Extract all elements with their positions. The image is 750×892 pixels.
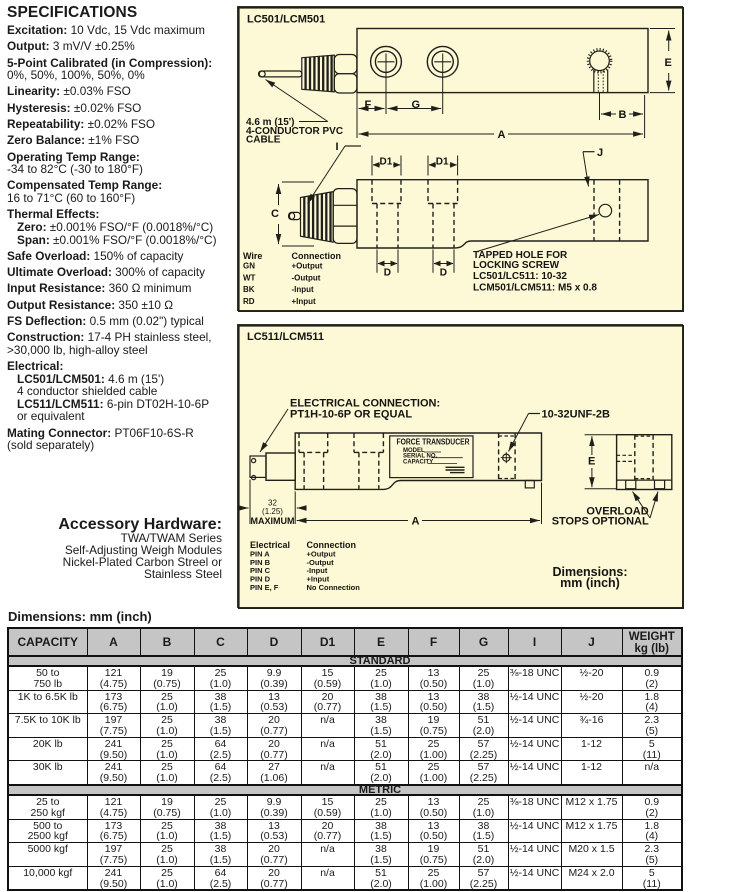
svg-text:-Output: -Output [292,273,321,282]
svg-text:J: J [597,147,603,159]
svg-text:+Input: +Input [292,297,317,306]
svg-text:B: B [619,109,627,121]
svg-text:G: G [412,99,421,111]
svg-text:PIN E, F: PIN E, F [250,583,279,592]
svg-text:A: A [412,516,420,528]
svg-text:LC501/LC511: 10-32: LC501/LC511: 10-32 [473,271,567,282]
svg-text:WT: WT [243,273,256,282]
svg-text:E: E [588,456,595,468]
svg-text:LC501/LCM501: LC501/LCM501 [247,14,325,26]
svg-text:+Output: +Output [292,262,323,271]
svg-text:(1.25): (1.25) [262,507,283,516]
svg-text:E: E [665,57,672,69]
svg-text:mm (inch): mm (inch) [560,576,620,590]
svg-text:C: C [271,208,279,220]
svg-text:D1: D1 [436,156,449,167]
svg-text:Wire: Wire [243,251,262,261]
svg-text:F: F [365,99,372,111]
svg-text:D: D [440,268,447,279]
svg-text:10-32UNF-2B: 10-32UNF-2B [542,409,611,421]
svg-text:MAXIMUM: MAXIMUM [251,516,295,526]
svg-text:RD: RD [243,297,255,306]
svg-text:Connection: Connection [307,540,357,550]
svg-text:Electrical: Electrical [250,540,290,550]
svg-text:D: D [384,268,391,279]
svg-text:LCM501/LCM511: M5 x 0.8: LCM501/LCM511: M5 x 0.8 [473,282,597,293]
svg-text:PT1H-10-6P OR EQUAL: PT1H-10-6P OR EQUAL [290,409,412,421]
svg-text:No Connection: No Connection [307,583,361,592]
svg-text:FORCE TRANSDUCER: FORCE TRANSDUCER [397,438,470,447]
svg-text:LOCKING SCREW: LOCKING SCREW [473,260,560,271]
svg-text:-Input: -Input [292,285,315,294]
svg-text:CAPACITY: CAPACITY [403,459,433,465]
svg-text:BK: BK [243,285,255,294]
svg-text:Connection: Connection [292,251,342,261]
svg-text:D1: D1 [380,156,393,167]
svg-text:GN: GN [243,262,255,271]
svg-text:I: I [336,141,339,153]
svg-text:A: A [498,129,506,141]
svg-text:STOPS OPTIONAL: STOPS OPTIONAL [552,516,649,528]
svg-text:CABLE: CABLE [246,135,281,146]
svg-text:LC511/LCM511: LC511/LCM511 [247,331,324,343]
